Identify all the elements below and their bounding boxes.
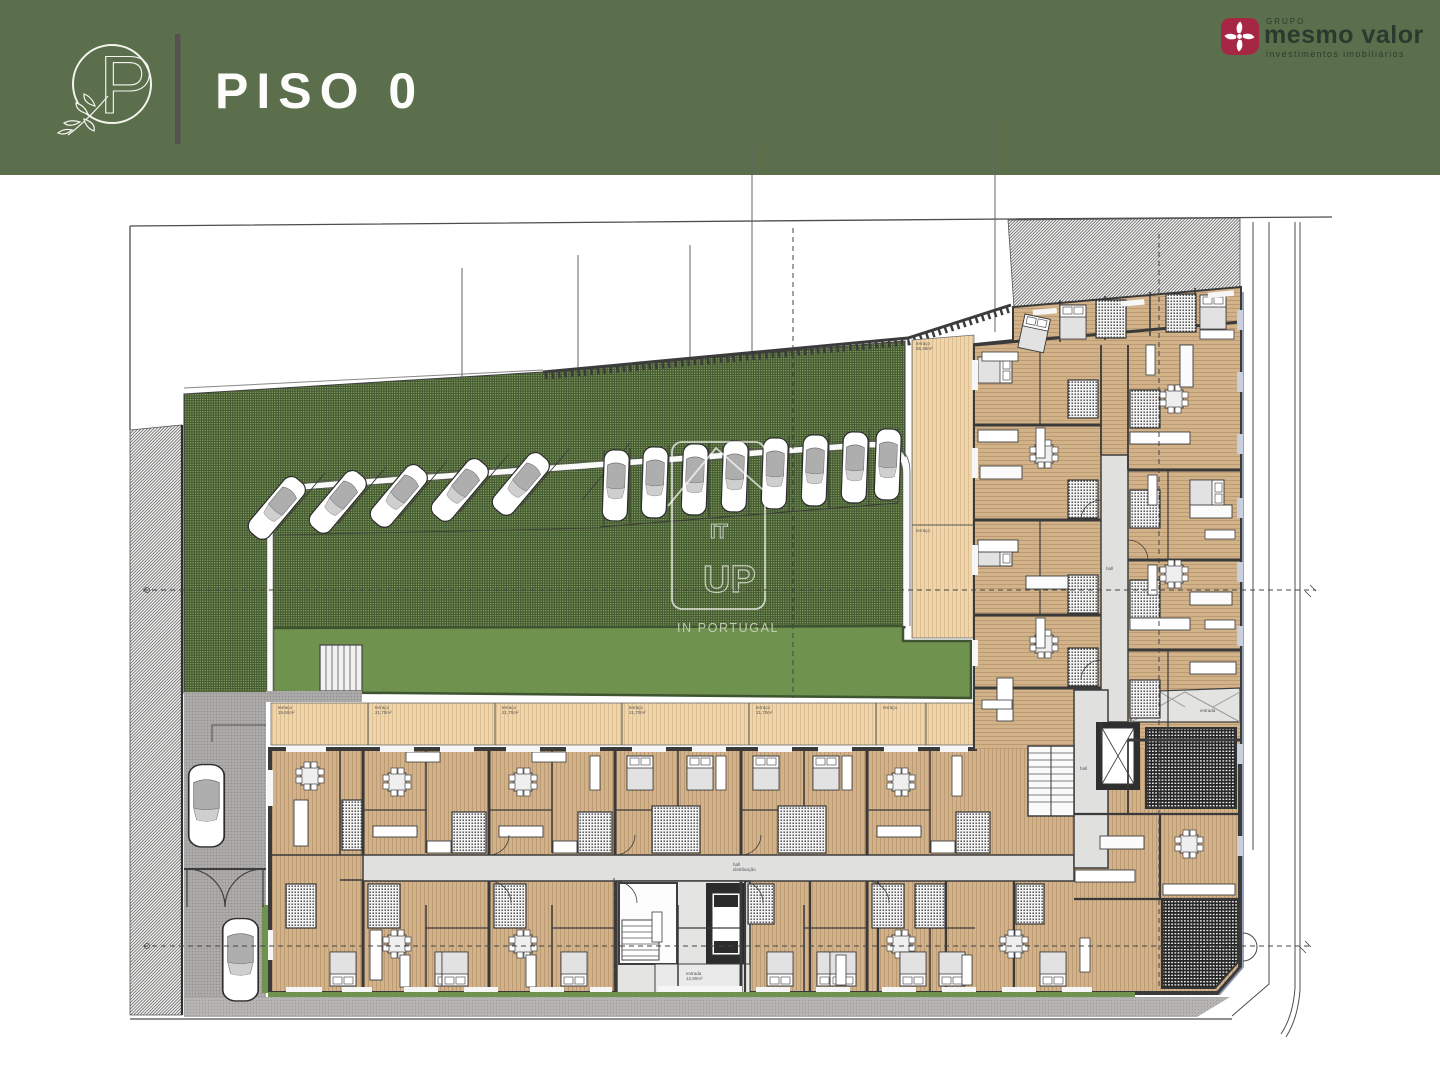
svg-text:distribuição: distribuição (733, 867, 756, 872)
svg-text:21,70m²: 21,70m² (502, 710, 519, 715)
svg-text:entrada: entrada (1200, 708, 1216, 713)
svg-text:P: P (99, 40, 154, 131)
svg-text:terraço: terraço (916, 528, 931, 533)
svg-text:IT: IT (710, 521, 728, 543)
svg-text:21,70m²: 21,70m² (629, 710, 646, 715)
svg-text:PISO 0: PISO 0 (215, 63, 424, 119)
svg-text:hall: hall (1080, 766, 1087, 771)
svg-text:IN PORTUGAL: IN PORTUGAL (677, 621, 779, 635)
svg-text:mesmo valor: mesmo valor (1264, 21, 1424, 49)
svg-text:21,70m²: 21,70m² (375, 710, 392, 715)
svg-text:investimentos imobiliários: investimentos imobiliários (1266, 49, 1405, 59)
svg-text:hall: hall (1106, 566, 1113, 571)
svg-text:terraço: terraço (883, 705, 898, 710)
svg-text:21,70m²: 21,70m² (756, 710, 773, 715)
svg-text:12,90m²: 12,90m² (686, 976, 703, 981)
svg-text:UP: UP (703, 559, 756, 601)
svg-text:55,48m²: 55,48m² (916, 346, 933, 351)
svg-text:19,60m²: 19,60m² (278, 710, 295, 715)
